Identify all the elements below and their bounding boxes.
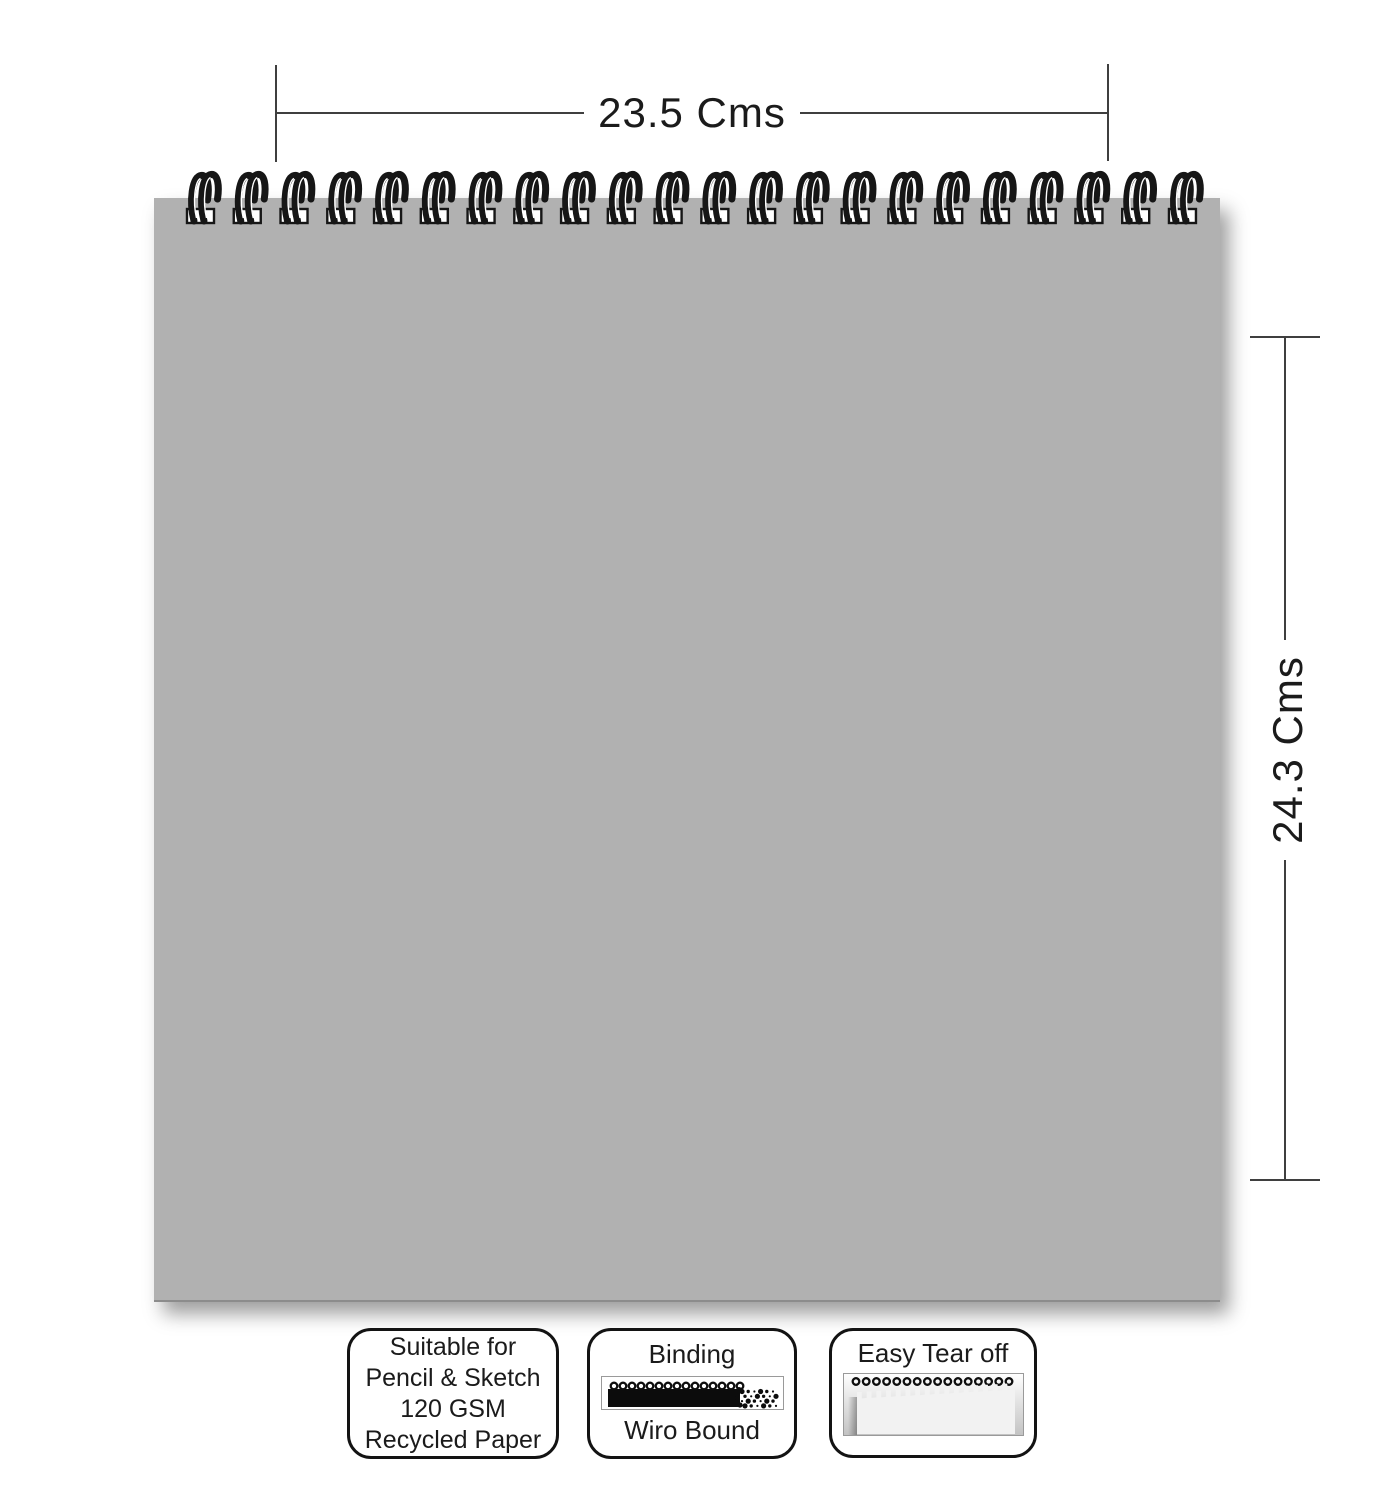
height-dimension-line-upper <box>1284 337 1286 640</box>
width-dimension-label: 23.5 Cms <box>584 89 800 137</box>
paper-feature-line-2: Pencil & Sketch <box>365 1363 540 1394</box>
width-dimension-line-left <box>276 112 584 114</box>
height-dimension-label: 24.3 Cms <box>1264 656 1312 844</box>
feature-box-binding: Binding Wiro Bound <box>587 1328 797 1459</box>
wiro-binding-strip-icon <box>601 1376 784 1410</box>
binding-subtitle: Wiro Bound <box>624 1415 760 1446</box>
feature-box-tear-off: Easy Tear off <box>829 1328 1037 1458</box>
wiro-coil-binding <box>150 163 1230 235</box>
paper-feature-line-3: 120 GSM <box>400 1394 506 1425</box>
width-dimension: 23.5 Cms <box>276 92 1108 134</box>
product-dimension-diagram: 23.5 Cms 24.3 Cms Suitable for Pencil & … <box>0 0 1385 1500</box>
feature-box-paper: Suitable for Pencil & Sketch 120 GSM Rec… <box>347 1328 559 1459</box>
height-dimension-line-lower <box>1284 860 1286 1180</box>
torn-page <box>857 1384 1015 1434</box>
coil-loops <box>187 174 1200 223</box>
page-shadow <box>848 1397 857 1435</box>
paper-feature-line-4: Recycled Paper <box>365 1425 541 1456</box>
binding-title: Binding <box>649 1339 736 1370</box>
paper-feature-line-1: Suitable for <box>390 1332 516 1363</box>
tear-off-title: Easy Tear off <box>858 1338 1009 1369</box>
binding-strip <box>608 1389 740 1407</box>
width-dimension-line-right <box>800 112 1108 114</box>
sketch-pad-cover <box>154 198 1220 1302</box>
torn-page-icon <box>843 1373 1024 1436</box>
